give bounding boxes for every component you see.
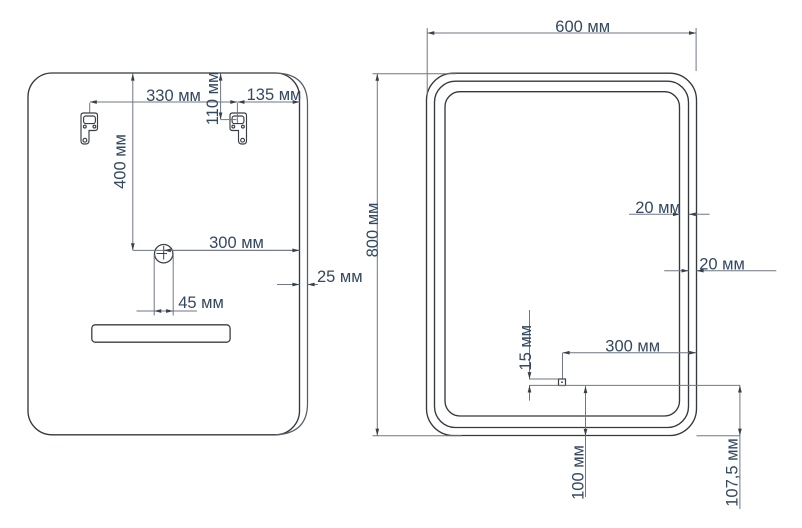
- svg-text:300 мм: 300 мм: [209, 234, 264, 252]
- svg-text:45 мм: 45 мм: [178, 294, 224, 312]
- svg-text:100 мм: 100 мм: [570, 445, 588, 500]
- svg-text:20 мм: 20 мм: [699, 256, 745, 274]
- svg-text:25 мм: 25 мм: [317, 268, 363, 286]
- svg-text:600 мм: 600 мм: [555, 18, 610, 36]
- svg-text:400 мм: 400 мм: [112, 134, 130, 189]
- svg-text:110 мм: 110 мм: [204, 72, 222, 126]
- svg-text:800 мм: 800 мм: [364, 203, 382, 258]
- svg-text:107,5 мм: 107,5 мм: [723, 438, 741, 507]
- svg-text:20 мм: 20 мм: [635, 199, 681, 217]
- svg-text:330 мм: 330 мм: [146, 87, 201, 105]
- svg-text:135 мм: 135 мм: [247, 86, 302, 104]
- svg-text:15 мм: 15 мм: [517, 325, 535, 371]
- svg-text:300 мм: 300 мм: [605, 337, 660, 355]
